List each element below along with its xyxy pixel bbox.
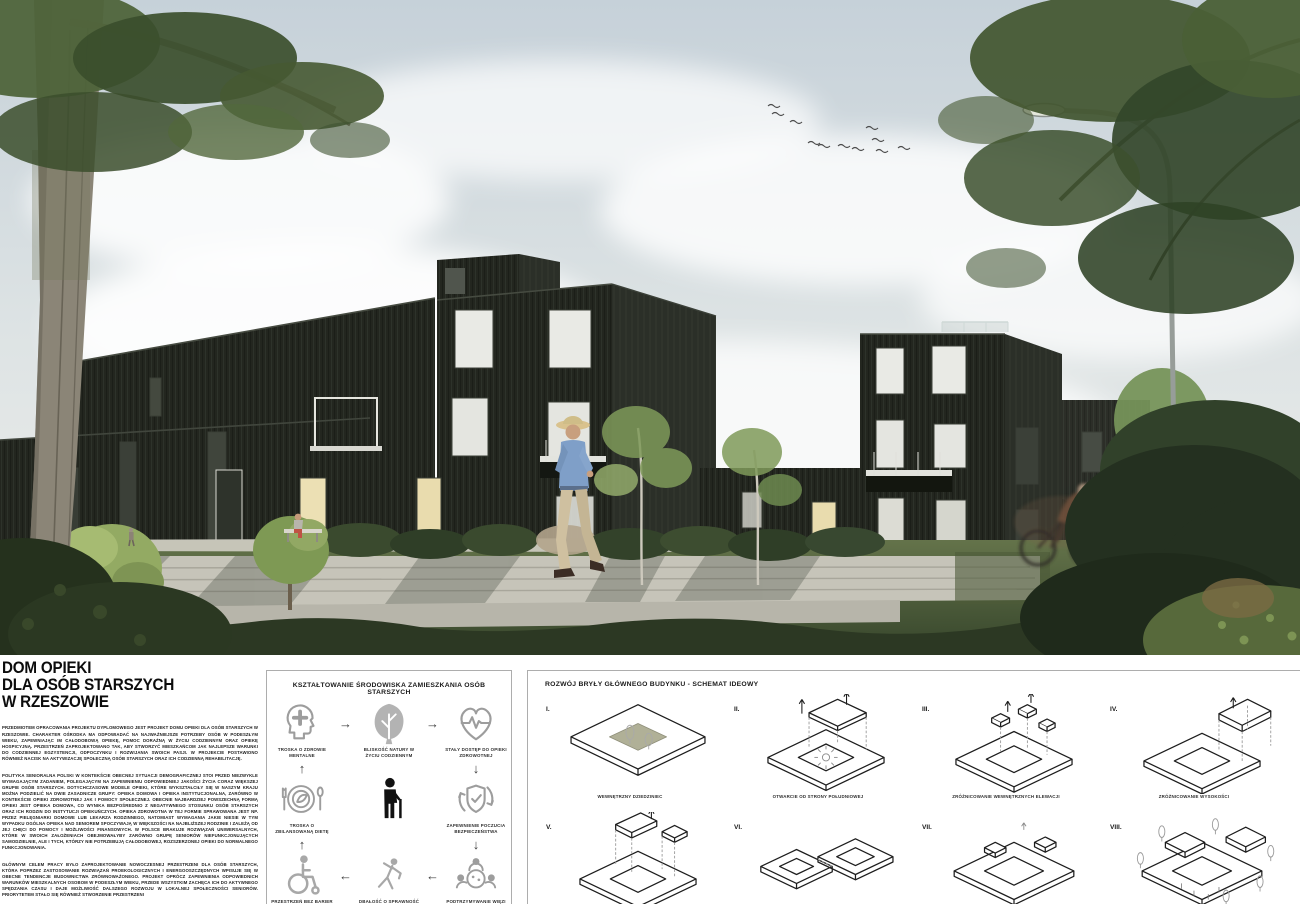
page-title: DOM OPIEKI DLA OSÓB STARSZYCH W RZESZOWI… bbox=[2, 660, 238, 710]
scheme-step-3: III. ZRÓŻNICOWANIE WEWNĘTRZNYCH EL bbox=[912, 690, 1100, 808]
wheelchair-icon bbox=[279, 852, 325, 898]
title-line-3: W RZESZOWIE bbox=[2, 694, 238, 711]
arrow-up: ↑ bbox=[299, 836, 306, 852]
icon-label: BLISKOŚĆ NATURY W ŻYCIU CODZIENNYM bbox=[356, 746, 422, 760]
intro-paragraph: PRZEDMIOTEM OPRACOWANIA PROJEKTU DYPLOMO… bbox=[2, 725, 258, 761]
mental-health-head-cross-icon bbox=[279, 700, 325, 746]
icon-label: TROSKA O ZDROWIE MENTALNE bbox=[269, 746, 335, 760]
social-bonds-group-icon bbox=[453, 852, 499, 898]
icon-label bbox=[387, 822, 391, 836]
scheme-step-7: VII. bbox=[912, 808, 1100, 904]
intro-paragraph: GŁÓWNYM CELEM PRACY BYŁO ZAPROJEKTOWANIE… bbox=[2, 862, 258, 898]
arrow-down: ↓ bbox=[473, 836, 480, 852]
intro-paragraph: POLITYKA SENIORALNA POLSKI W KONTEKŚCIE … bbox=[2, 773, 258, 851]
arrow-right: → bbox=[426, 717, 439, 730]
title-line-2: DLA OSÓB STARSZYCH bbox=[2, 677, 238, 694]
icon-label: PRZESTRZEŃ BEZ BARIER bbox=[269, 898, 335, 904]
scheme-step-1: I. WEWNĘTRZNY DZIEDZINIEC bbox=[536, 690, 724, 808]
icon-label: TROSKA O ZBILANSOWANĄ DIETĘ bbox=[269, 822, 335, 836]
massing-diagram-courtyard bbox=[558, 694, 718, 794]
presentation-board: DOM OPIEKI DLA OSÓB STARSZYCH W RZESZOWI… bbox=[0, 0, 1300, 904]
scheme-step-2: II. bbox=[724, 690, 912, 808]
massing-scheme-panel: ROZWÓJ BRYŁY GŁÓWNEGO BUDYNKU - SCHEMAT … bbox=[527, 670, 1300, 904]
scheme-step-4: IV. ZRÓŻNICOWANIE WYSOKOŚCI bbox=[1100, 690, 1288, 808]
right-tree-canopy bbox=[938, 0, 1300, 314]
scheme-step-5: V. bbox=[536, 808, 724, 904]
arrow-left: ← bbox=[426, 869, 439, 882]
scheme-step-6: VI. bbox=[724, 808, 912, 904]
intro-column: DOM OPIEKI DLA OSÓB STARSZYCH W RZESZOWI… bbox=[2, 660, 258, 902]
step-caption: ZRÓŻNICOWANIE WEWNĘTRZNYCH ELEWACJI bbox=[912, 794, 1100, 799]
elderly-person-cane-icon bbox=[366, 776, 412, 822]
scheme-step-8: VIII. bbox=[1100, 808, 1288, 904]
icon-label: PODTRZYMYWANIE WIĘZI bbox=[444, 898, 507, 904]
step-caption: ZRÓŻNICOWANIE WYSOKOŚCI bbox=[1100, 794, 1288, 799]
arrow-up: ↑ bbox=[299, 760, 306, 776]
shield-check-cycle-icon bbox=[453, 776, 499, 822]
massing-diagram-inner-elevations bbox=[934, 694, 1094, 794]
title-line-1: DOM OPIEKI bbox=[2, 660, 238, 677]
scheme-grid: I. WEWNĘTRZNY DZIEDZINIEC II. bbox=[536, 690, 1300, 904]
arrow-left: ← bbox=[339, 869, 352, 882]
environment-icon-grid: → → TROSKA O ZDROWIE MENTALNE BLISKOŚĆ N… bbox=[267, 700, 511, 904]
massing-diagram-south-opening bbox=[746, 694, 906, 794]
exercise-stretch-icon bbox=[369, 855, 409, 895]
arrow-down: ↓ bbox=[473, 760, 480, 776]
rooftop-glass-railing bbox=[942, 322, 1008, 332]
arrow-right: → bbox=[339, 717, 352, 730]
nature-tree-icon bbox=[366, 700, 412, 746]
environment-panel-title: KSZTAŁTOWANIE ŚRODOWISKA ZAMIESZKANIA OS… bbox=[273, 682, 505, 696]
massing-diagram-added-bars bbox=[558, 812, 718, 904]
balanced-diet-plate-icon bbox=[279, 776, 325, 822]
heart-pulse-icon bbox=[453, 700, 499, 746]
massing-diagram-heights bbox=[1122, 694, 1282, 794]
step-caption: OTWARCIE OD STRONY POŁUDNIOWEJ bbox=[724, 794, 912, 799]
icon-label: STAŁY DOSTĘP DO OPIEKI ZDROWOTNEJ bbox=[443, 746, 509, 760]
icon-label: ZAPEWNIENIE POCZUCIA BEZPIECZEŃSTWA bbox=[443, 822, 509, 836]
scheme-panel-title: ROZWÓJ BRYŁY GŁÓWNEGO BUDYNKU - SCHEMAT … bbox=[545, 681, 1300, 688]
massing-diagram-two-volumes bbox=[746, 812, 906, 904]
environment-panel: KSZTAŁTOWANIE ŚRODOWISKA ZAMIESZKANIA OS… bbox=[266, 670, 512, 904]
massing-diagram-joined-volumes bbox=[934, 812, 1094, 904]
architectural-render bbox=[0, 0, 1300, 655]
massing-diagram-final bbox=[1122, 812, 1282, 904]
icon-label: DBAŁOŚĆ O SPRAWNOŚĆ bbox=[357, 898, 421, 904]
step-caption: WEWNĘTRZNY DZIEDZINIEC bbox=[536, 794, 724, 799]
